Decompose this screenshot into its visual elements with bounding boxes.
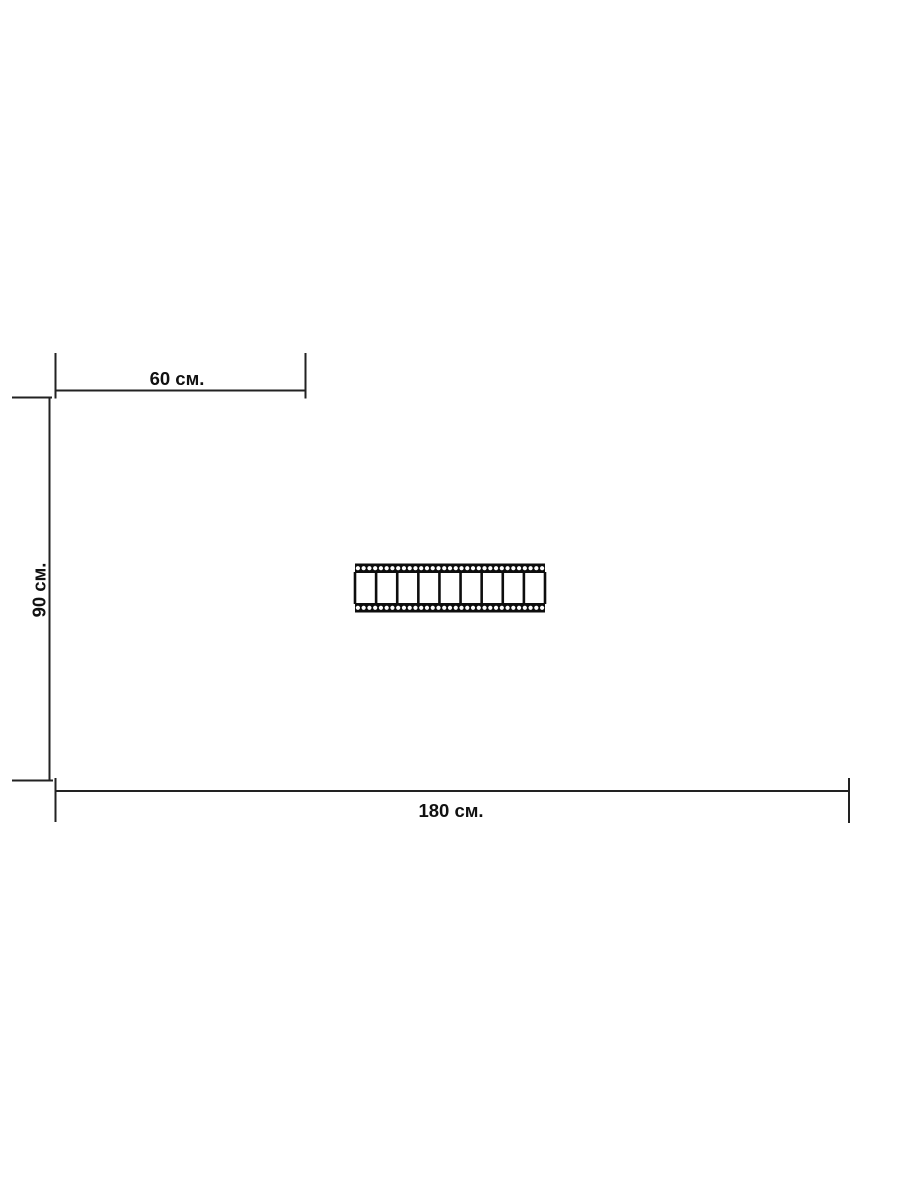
filmstrip-perforation-hole (379, 606, 383, 610)
filmstrip-perforation-hole (367, 606, 371, 610)
filmstrip-perforation-hole (379, 566, 383, 570)
filmstrip-perforation-hole (534, 566, 538, 570)
filmstrip-perforation-hole (505, 566, 509, 570)
filmstrip-perforation-hole (396, 606, 400, 610)
dimension-label-side-height: 90 см. (29, 563, 50, 618)
filmstrip-perforation-hole (488, 566, 492, 570)
filmstrip-perforation-hole (402, 606, 406, 610)
filmstrip-perforation-hole (442, 566, 446, 570)
filmstrip-perforation-hole (488, 606, 492, 610)
filmstrip-perforation-hole (356, 606, 360, 610)
filmstrip-perforation-hole (465, 606, 469, 610)
dimension-label-bottom-width: 180 см. (418, 800, 483, 821)
filmstrip-perforation-hole (471, 606, 475, 610)
filmstrip-perforation-hole (528, 566, 532, 570)
filmstrip-perforation-hole (511, 566, 515, 570)
filmstrip-perforation-hole (477, 566, 481, 570)
filmstrip-perforation-hole (494, 606, 498, 610)
filmstrip-perforation-hole (436, 566, 440, 570)
filmstrip-perforation-hole (425, 566, 429, 570)
filmstrip-perforation-hole (442, 606, 446, 610)
filmstrip-perforation-hole (385, 566, 389, 570)
filmstrip-perforation-hole (517, 566, 521, 570)
dimension-side-height: 90 см. (12, 397, 53, 781)
filmstrip-perforation-hole (528, 606, 532, 610)
filmstrip-perforation-hole (448, 606, 452, 610)
filmstrip-perforation-hole (367, 566, 371, 570)
filmstrip-perforation-hole (373, 606, 377, 610)
filmstrip-perforation-hole (482, 606, 486, 610)
filmstrip-perforation-hole (408, 566, 412, 570)
filmstrip-perforation-hole (477, 606, 481, 610)
filmstrip-perforation-hole (471, 566, 475, 570)
filmstrip-perforation-hole (540, 566, 544, 570)
filmstrip-perforation-hole (482, 566, 486, 570)
filmstrip-perforation-hole (454, 566, 458, 570)
dimension-bottom-width: 180 см. (56, 778, 850, 823)
filmstrip-perforation-hole (523, 606, 527, 610)
filmstrip-perforation-hole (396, 566, 400, 570)
filmstrip-perforation-hole (419, 606, 423, 610)
filmstrip-perforation-hole (408, 606, 412, 610)
dimension-diagram: 60 см. 90 см. 180 см. (0, 0, 900, 1200)
diagram-svg: 60 см. 90 см. 180 см. (0, 0, 900, 1200)
filmstrip-perforation-hole (534, 606, 538, 610)
filmstrip-perforation-hole (385, 606, 389, 610)
filmstrip-perforation-hole (413, 566, 417, 570)
filmstrip-perforation-hole (459, 566, 463, 570)
filmstrip-perforation-hole (523, 566, 527, 570)
dimension-label-top-width: 60 см. (150, 368, 205, 389)
filmstrip-perforation-hole (419, 566, 423, 570)
filmstrip-perforation-hole (500, 606, 504, 610)
filmstrip-perforation-hole (425, 606, 429, 610)
filmstrip-perforation-hole (505, 606, 509, 610)
filmstrip-perforation-hole (356, 566, 360, 570)
filmstrip-perforation-hole (511, 606, 515, 610)
filmstrip-perforation-hole (362, 566, 366, 570)
filmstrip-perforation-hole (402, 566, 406, 570)
filmstrip-perforation-hole (436, 606, 440, 610)
filmstrip-perforation-hole (517, 606, 521, 610)
filmstrip-perforation-hole (362, 606, 366, 610)
dimension-top-width: 60 см. (56, 353, 306, 399)
filmstrip-perforation-hole (448, 566, 452, 570)
filmstrip-perforation-hole (431, 566, 435, 570)
filmstrip-perforation-hole (373, 566, 377, 570)
filmstrip-perforation-hole (390, 606, 394, 610)
filmstrip-perforation-hole (500, 566, 504, 570)
filmstrip-perforation-hole (390, 566, 394, 570)
filmstrip-perforation-hole (540, 606, 544, 610)
filmstrip-perforation-hole (465, 566, 469, 570)
filmstrip-graphic (355, 564, 545, 613)
filmstrip-frames-area (355, 573, 545, 603)
filmstrip-perforation-hole (413, 606, 417, 610)
filmstrip-perforation-hole (431, 606, 435, 610)
filmstrip-perforation-hole (459, 606, 463, 610)
filmstrip-perforation-hole (454, 606, 458, 610)
filmstrip-perforation-hole (494, 566, 498, 570)
